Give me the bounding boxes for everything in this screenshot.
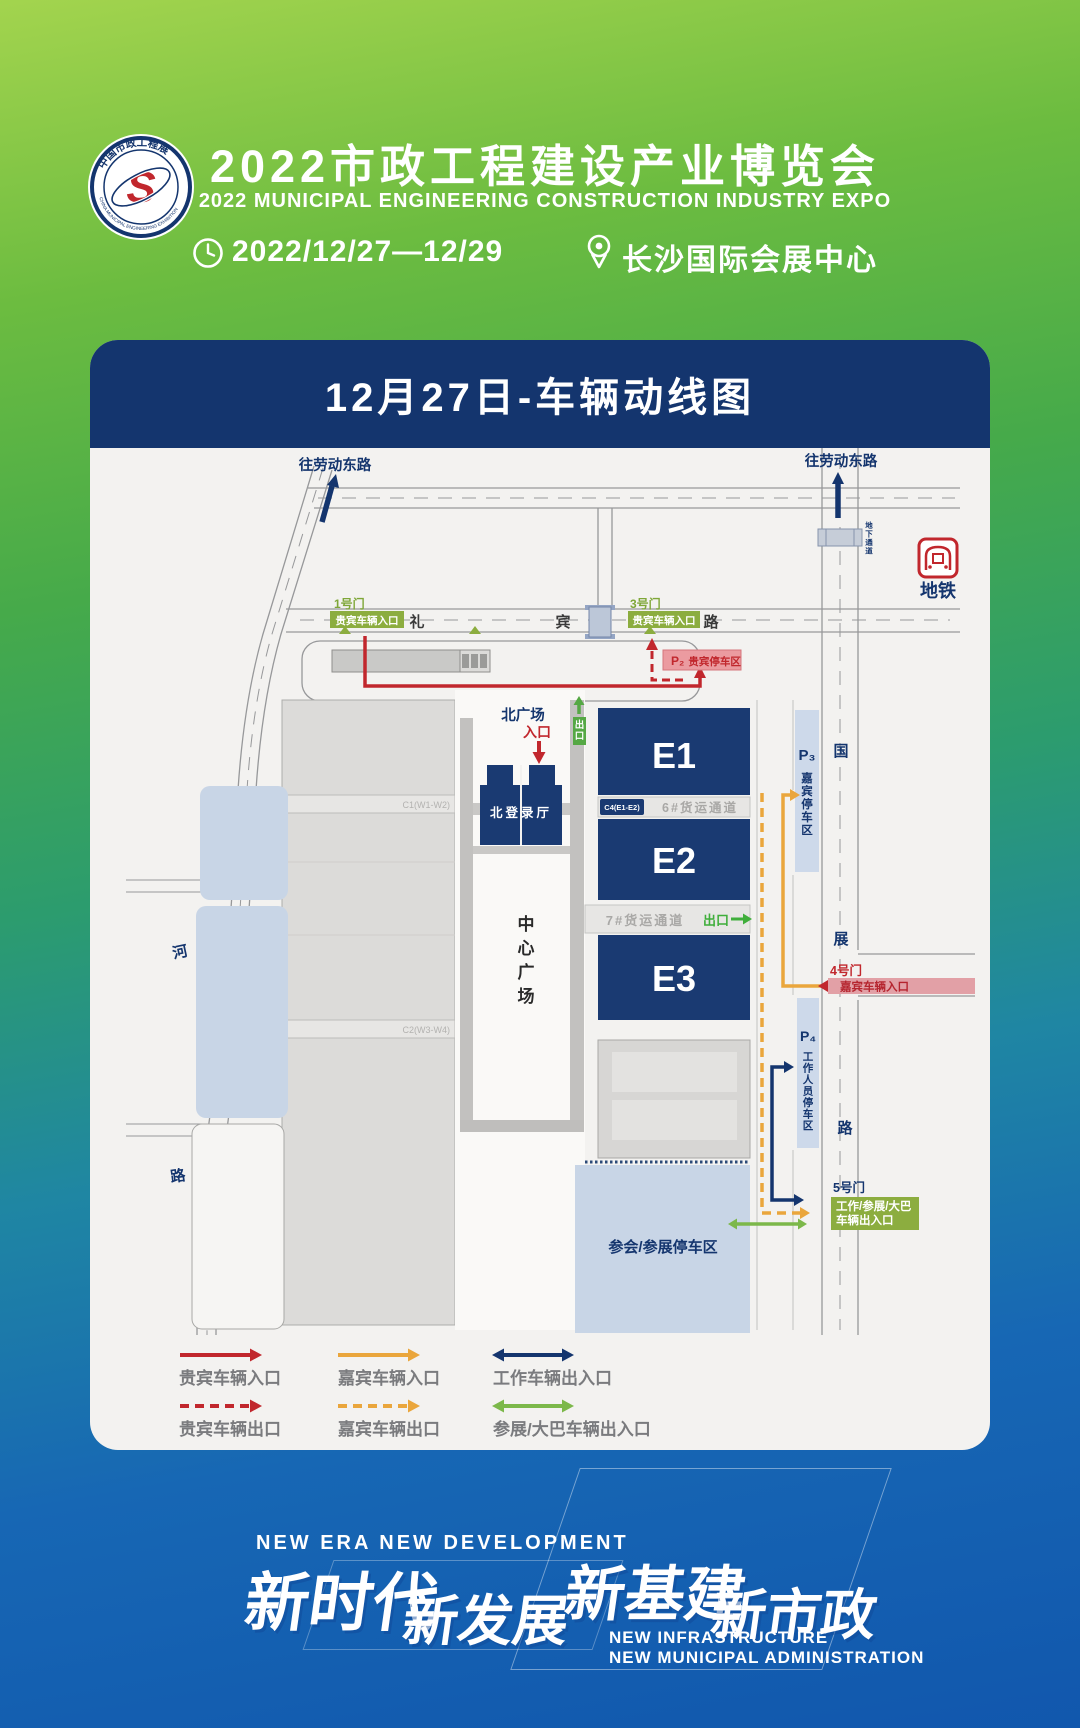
route-vip-exit-arrow [646,638,658,650]
south-parking-label: 参会/参展停车区 [608,1238,717,1256]
gate5-text-2: 车辆出入口 [836,1213,894,1227]
p2-parking-label: P₂贵宾停车区 [663,650,741,670]
map-title: 12月27日-车辆动线图 [325,365,755,423]
metro-icon [919,539,957,577]
route-staff [772,1067,794,1200]
hall-e3-label: E3 [652,958,696,999]
slogan-new-development: 新发展 [398,1576,574,1656]
route-guest-exit-arrow [800,1207,810,1219]
p2-id: P₂ [671,654,684,668]
entrance-label: 入口 [523,724,551,740]
svg-text:工作车辆出入口: 工作车辆出入口 [493,1368,612,1388]
gate5-label: 5号门 工作/参展/大巴 车辆出入口 [831,1180,919,1230]
north-registration-hall: 北登录厅 [480,765,562,845]
p3-id: P₃ [799,747,816,764]
p4-parking-strip: P₄ 工作人员停车区 [797,998,819,1148]
p3-parking-strip: P₃ 嘉宾停车区 [795,710,819,872]
c4-label: C4(E1-E2) [604,803,640,812]
page-subtitle: 2022 MUNICIPAL ENGINEERING CONSTRUCTION … [165,190,925,213]
gate1-name: 1号门 [334,596,365,611]
road-guozhan-1: 国 [833,743,848,760]
legend-guest-entry: 嘉宾车辆入口 [337,1349,440,1389]
p4-label: 工作人员停车区 [803,1051,814,1132]
cargo6-label: 6#货运通道 [662,800,738,815]
svg-text:参展/大巴车辆出入口: 参展/大巴车辆出入口 [493,1419,651,1439]
to-laodong-left-arrow [322,486,332,522]
exit-box-label: 出口 [575,719,585,742]
footer-sub-en-1: NEW INFRASTRUCTURE [609,1628,828,1648]
map-card-header: 12月27日-车辆动线图 [90,340,990,448]
gate4-label: 4号门 嘉宾车辆入口 [818,963,975,994]
legend-vip-entry: 贵宾车辆入口 [179,1349,281,1389]
route-staff-arrow-p4 [784,1061,794,1073]
route-map: C1(W1-W2) C2(W3-W4) 中心广场 [90,448,990,1450]
gate5-text-1: 工作/参展/大巴 [836,1199,912,1213]
route-staff-arrow-gate5 [794,1194,804,1206]
expo-logo: 中国市政工程展 CHINA MUNICIPAL ENGINEERING EXHI… [86,132,196,242]
gate5-name: 5号门 [833,1180,865,1195]
hall-e2-label: E2 [652,840,696,881]
route-exhibitor-arrow-right [798,1219,807,1230]
gate1-label: 1号门 贵宾车辆入口 [330,596,404,628]
underpass-label: 地下通道 [865,520,873,556]
gate4-text: 嘉宾车辆入口 [839,980,909,994]
p4-id: P₄ [800,1028,816,1044]
location-pin-icon [583,233,615,271]
p3-label: 嘉宾停车区 [800,771,813,837]
road-libin-3: 路 [703,613,719,631]
road-guozhan-2: 展 [833,931,848,948]
gate3-label: 3号门 贵宾车辆入口 [628,596,700,628]
legend-exhibitor: 参展/大巴车辆出入口 [492,1400,651,1440]
hall-e1-label: E1 [652,735,696,776]
exhibition-halls: E1 C4(E1-E2) 6#货运通道 E2 7#货运通道 出口 E3 [585,708,752,1158]
legend-guest-exit: 嘉宾车辆出口 [337,1400,440,1440]
event-dates: 2022/12/27—12/29 [232,235,503,269]
road-guozhan-3: 路 [837,1119,853,1137]
map-legend: 贵宾车辆入口 嘉宾车辆入口 工作车辆出入口 贵宾车辆出口 嘉宾 [179,1349,651,1440]
to-laodong-left-label: 往劳动东路 [299,456,372,474]
p2-label: 贵宾停车区 [688,655,741,668]
riverside-parking-lots [192,786,288,1329]
hall-c2-label: C2(W3-W4) [403,1025,451,1035]
road-west-2: 路 [169,1166,187,1186]
svg-text:嘉宾车辆出口: 嘉宾车辆出口 [337,1419,440,1439]
road-libin-1: 礼 [409,613,424,631]
expo-poster: 中国市政工程展 CHINA MUNICIPAL ENGINEERING EXHI… [0,0,1080,1728]
gate3-name: 3号门 [630,596,661,611]
gate4-arrow [818,980,828,992]
svg-text:P₂贵宾停车区: P₂贵宾停车区 [671,654,741,668]
road-libin-2: 宾 [555,613,570,631]
bus-station-building [332,650,490,672]
pedestrian-bridge [585,605,615,639]
page-title: 2022市政工程建设产业博览会 [185,130,905,195]
gate3-text: 贵宾车辆入口 [633,614,696,627]
hall-c1-label: C1(W1-W2) [403,800,451,810]
footer-sub-en-2: NEW MUNICIPAL ADMINISTRATION [609,1648,924,1668]
cargo7-label: 7#货运通道 [606,913,684,928]
legend-vip-exit: 贵宾车辆出口 [179,1400,281,1440]
route-guest-exit [762,793,800,1213]
cargo7-exit-label: 出口 [703,913,729,928]
gate4-name: 4号门 [830,963,862,978]
to-laodong-right-label: 往劳动东路 [805,452,878,470]
clock-icon [192,237,224,269]
north-square-label: 北广场 [501,706,545,724]
underpass-bridge: 地下通道 [818,520,873,556]
west-halls: C1(W1-W2) C2(W3-W4) [282,700,455,1325]
road-west-1: 河 [171,942,189,963]
metro-label: 地铁 [920,580,956,601]
svg-text:贵宾车辆入口: 贵宾车辆入口 [179,1368,281,1388]
north-hall-label: 北登录厅 [490,805,552,820]
svg-text:贵宾车辆出口: 贵宾车辆出口 [179,1419,281,1439]
south-parking-area: 参会/参展停车区 [575,1165,750,1333]
gate1-text: 贵宾车辆入口 [336,614,399,627]
svg-text:嘉宾车辆入口: 嘉宾车辆入口 [337,1368,440,1388]
event-venue: 长沙国际会展中心 [622,235,878,279]
legend-staff: 工作车辆出入口 [492,1349,612,1389]
